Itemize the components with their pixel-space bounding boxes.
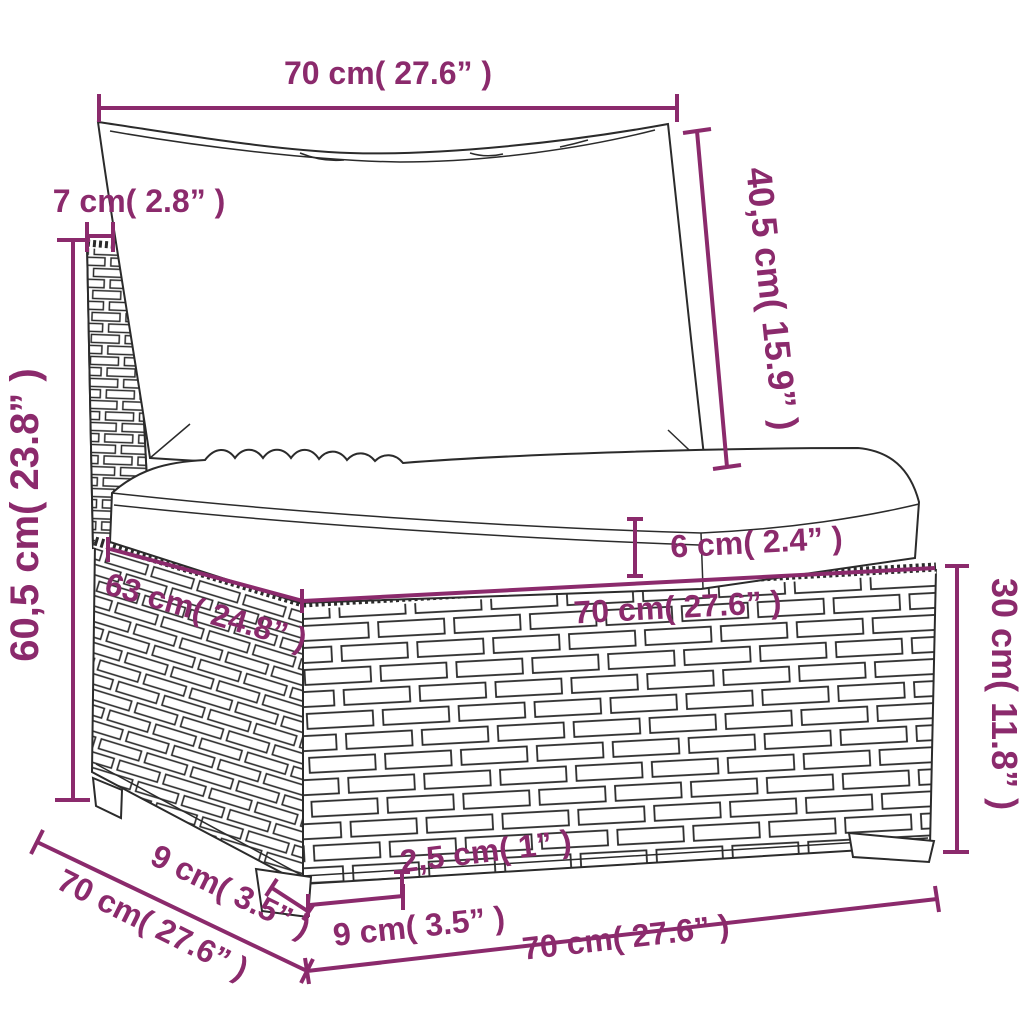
dim-line-total-height: [55, 240, 90, 800]
dimension-diagram: 70 cm( 27.6” ) 40,5 cm( 15.9” ) 7 cm( 2.…: [0, 0, 1024, 1024]
label-back-panel-thickness: 7 cm( 2.8” ): [53, 183, 226, 219]
label-back-cushion-height: 40,5 cm( 15.9” ): [738, 165, 806, 432]
label-base-height: 30 cm( 11.8” ): [984, 578, 1024, 810]
sofa-illustration: [87, 122, 936, 917]
dim-line-back-cushion-width: [99, 94, 677, 122]
label-back-cushion-width: 70 cm( 27.6” ): [284, 55, 492, 91]
sofa-dimension-drawing: 70 cm( 27.6” ) 40,5 cm( 15.9” ) 7 cm( 2.…: [0, 0, 1024, 1024]
label-overall-width: 70 cm( 27.6” ): [520, 907, 731, 966]
label-leg-width: 9 cm( 3.5” ): [331, 899, 506, 953]
dim-line-base-height: [943, 566, 969, 852]
label-total-height: 60,5 cm( 23.8” ): [3, 368, 47, 662]
back-cushion: [98, 122, 705, 469]
